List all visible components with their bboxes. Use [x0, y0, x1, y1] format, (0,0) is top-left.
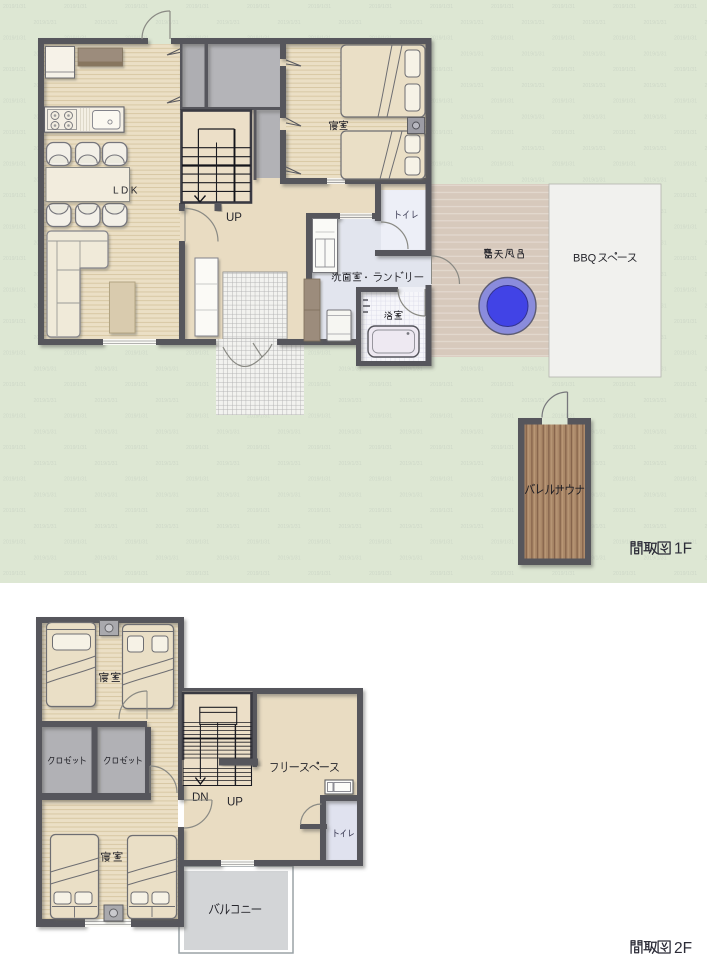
svg-text:2F: 2F	[674, 940, 692, 957]
svg-text:UP: UP	[226, 212, 242, 224]
svg-text:DN: DN	[192, 792, 209, 804]
svg-text:LDK: LDK	[113, 186, 140, 197]
svg-text:1F: 1F	[674, 541, 692, 558]
svg-text:UP: UP	[227, 797, 243, 809]
svg-text:BBQ: BBQ	[573, 253, 597, 265]
